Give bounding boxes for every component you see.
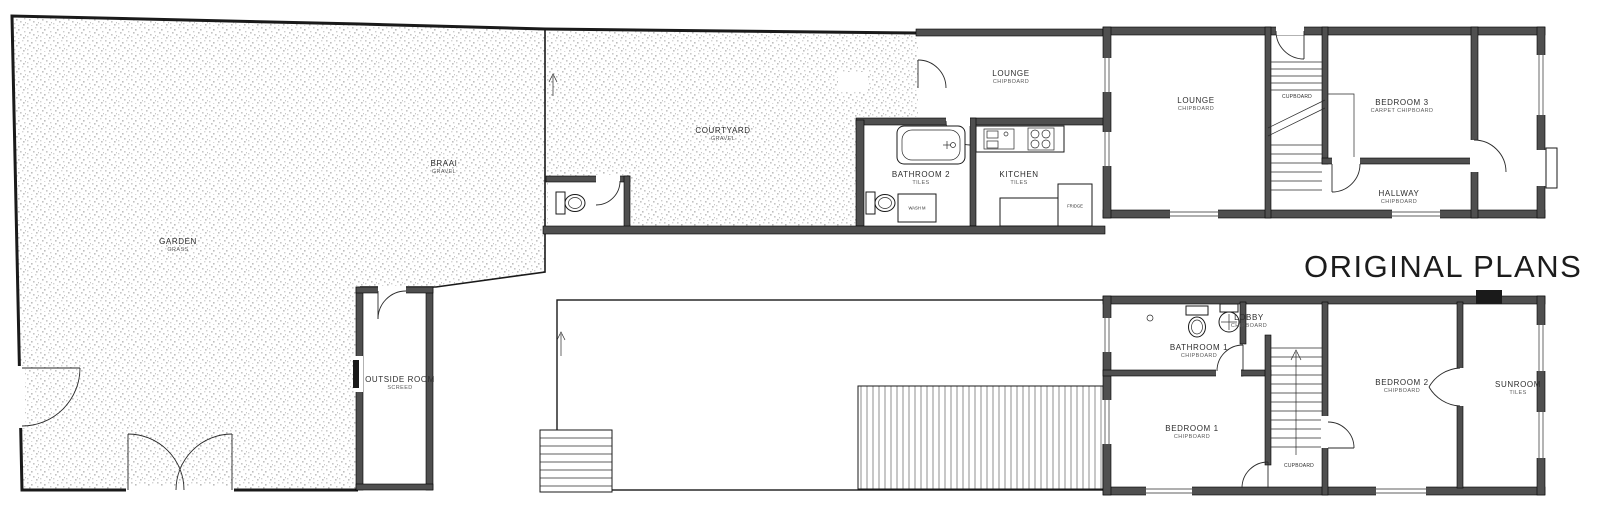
bathroom1-toilet-symbol [1186,306,1208,337]
bedroom2-door [1328,422,1354,448]
room-name: BEDROOM 3 [1371,98,1434,108]
room-label-kitchen: KITCHEN TILES [999,170,1038,188]
first-stair-wall-right [1322,302,1328,495]
first-cupboard-door [1242,462,1268,488]
room-name: BEDROOM 2 [1375,378,1428,388]
room-label-bedroom1: BEDROOM 1 CHIPBOARD [1165,424,1218,442]
room-label-bedroom3: BEDROOM 3 CARPET CHIPBOARD [1371,98,1434,116]
bedroom3-closet [1328,94,1354,158]
room-finish: CHIPBOARD [1231,324,1267,331]
room-finish: TILES [892,181,950,188]
courtyard-patch [838,72,868,92]
stair-bedroom3-wall [1322,27,1328,164]
bathtub-symbol [897,126,965,164]
sunroom-door-gap [1456,368,1464,406]
room-finish: GRASS [159,248,197,255]
room-finish: CHIPBOARD [1177,107,1214,114]
room-name: BEDROOM 1 [1165,424,1218,434]
deck-area [858,386,1103,489]
room-finish: GRAVEL [695,137,750,144]
first-stair-wall-left [1265,335,1271,465]
lounge-stair-wall [1265,27,1271,218]
bathroom1-drain [1147,315,1153,321]
gate-gap-bottom [126,486,234,495]
room-name: LOUNGE [992,69,1029,79]
bedroom3-porch-wall [1471,27,1478,218]
kitchen-lower-counter-symbol [1000,198,1058,226]
room-label-cupboard-ground: CUPBOARD [1282,94,1312,101]
bedroom2-door-gap [1321,416,1329,448]
ground-house-wall-bottom [1103,210,1545,218]
external-steps-symbol [540,430,612,492]
wc-door-gap [596,175,620,183]
room-name: BATHROOM 1 [1170,343,1228,353]
room-finish: SCREED [365,386,435,393]
bathkitchen-wall-top [856,118,1107,125]
gate-gap-left [15,366,25,428]
outside-room-door-gap [378,286,406,294]
ground-house-wall-left [1103,27,1111,218]
room-name: LOBBY [1231,313,1267,323]
room-name: OUTSIDE ROOM [365,375,435,385]
room-label-braai: BRAAI GRAVEL [430,159,457,177]
room-finish: CHIPBOARD [1379,200,1420,207]
label-fridge: FRIDGE [1067,203,1083,208]
floor-plan-sheet: GARDEN GRASS BRAAI GRAVEL COURTYARD GRAV… [0,0,1600,515]
lounge-front-wall-top [916,29,1107,36]
braai-area [360,24,545,287]
bathroom2-door-gap [946,117,970,126]
porch-door-gap [1470,140,1479,172]
room-name: COURTYARD [695,126,750,136]
first-stairs-symbol [1271,348,1322,455]
kitchen-counter-symbol [976,126,1064,152]
room-label-courtyard: COURTYARD GRAVEL [695,126,750,144]
room-finish: TILES [999,181,1038,188]
room-label-lounge-main: LOUNGE CHIPBOARD [1177,96,1214,114]
courtyard-bottom-wall [543,226,1105,234]
room-finish: TILES [1495,391,1541,398]
fixture-name: FRIDGE [1067,203,1083,208]
room-name: BATHROOM 2 [892,170,950,180]
room-label-lounge-front: LOUNGE CHIPBOARD [992,69,1029,87]
room-finish: CHIPBOARD [1170,354,1228,361]
room-label-sunroom: SUNROOM TILES [1495,380,1541,398]
room-name: LOUNGE [1177,96,1214,106]
wc-wall-right [624,176,630,228]
sheet-title: ORIGINAL PLANS [1304,249,1582,285]
outside-room-wall-bottom [356,484,433,490]
room-finish: CHIPBOARD [1165,435,1218,442]
bathroom1-door-gap [1216,369,1241,377]
room-name: HALLWAY [1379,189,1420,199]
entry-door-gap [1536,150,1546,186]
front-door-gap [1276,26,1304,35]
room-label-lobby: LOBBY CHIPBOARD [1231,313,1267,331]
entry-step [1546,148,1557,188]
room-label-bathroom1: BATHROOM 1 CHIPBOARD [1170,343,1228,361]
chimney [1476,290,1502,304]
room-name: CUPBOARD [1284,463,1314,470]
room-label-bathroom2: BATHROOM 2 TILES [892,170,950,188]
sunroom-door [1429,368,1460,406]
room-name: SUNROOM [1495,380,1541,390]
room-finish: CARPET CHIPBOARD [1371,109,1434,116]
room-label-outside-room: OUTSIDE ROOM SCREED [365,375,435,393]
bath-kitchen-divider [970,118,976,226]
label-wash-machine: WASH M [908,205,925,210]
room-name: CUPBOARD [1282,94,1312,101]
room-name: KITCHEN [999,170,1038,180]
room-finish: CHIPBOARD [1375,389,1428,396]
room-finish: GRAVEL [430,170,457,177]
outside-room-side-door [353,360,359,388]
bathkitchen-wall-left [856,120,864,226]
room-label-garden: GARDEN GRASS [159,237,197,255]
room-finish: CHIPBOARD [992,80,1029,87]
room-label-hallway: HALLWAY CHIPBOARD [1379,189,1420,207]
room-label-bedroom2: BEDROOM 2 CHIPBOARD [1375,378,1428,396]
bedroom3-door [1332,164,1360,192]
bedroom3-door-gap [1332,157,1360,165]
room-name: GARDEN [159,237,197,247]
room-name: BRAAI [430,159,457,169]
room-label-cupboard-first: CUPBOARD [1284,463,1314,470]
fixture-name: WASH M [908,205,925,210]
ground-stairs-symbol [1268,62,1325,190]
